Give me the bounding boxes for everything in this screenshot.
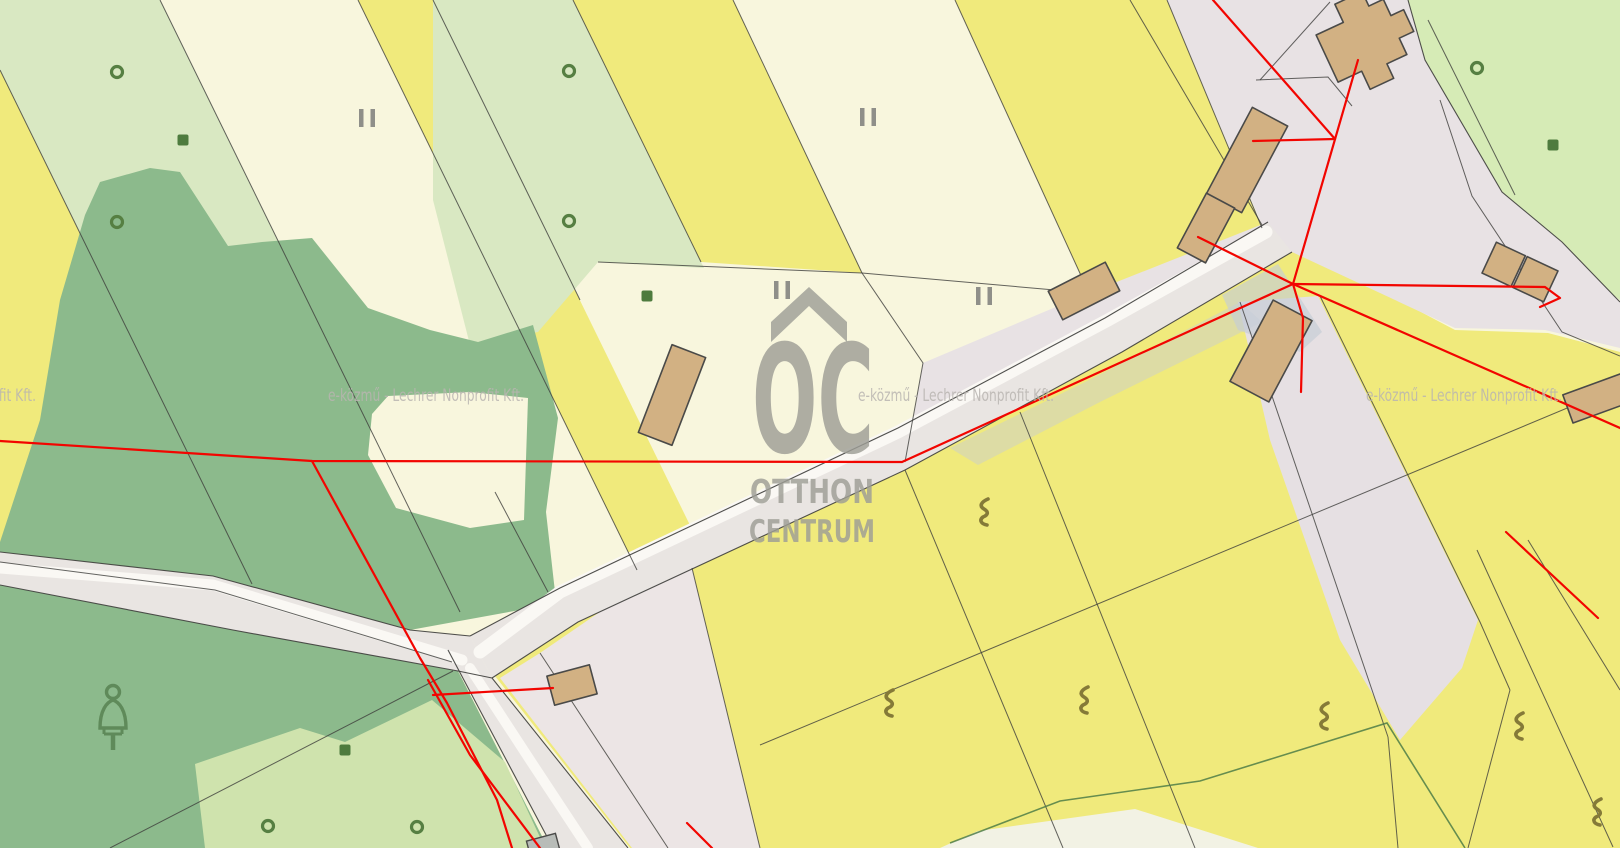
shrub-square-icon xyxy=(340,745,351,756)
shrub-square-icon xyxy=(178,135,189,146)
provider-watermark: e-közmű - Lechrer Nonprofit Kft. xyxy=(1366,386,1562,406)
cadastral-map: e-közmű - Lechrer Nonprofit Kft. e-közmű… xyxy=(0,0,1620,848)
logo-word-1: OTTHON xyxy=(750,472,874,511)
logo-word-2: CENTRUM xyxy=(749,514,875,550)
provider-watermark: e-közmű - Lechrer Nonprofit Kft. xyxy=(328,386,524,406)
provider-watermark: e-közmű - Lechrer Nonprofit Kft. xyxy=(0,386,36,406)
provider-watermark: e-közmű - Lechrer Nonprofit Kft. xyxy=(858,386,1054,406)
shrub-square-icon xyxy=(1548,140,1559,151)
otthon-centrum-logo: OC OTTHON CENTRUM xyxy=(749,287,875,550)
shrub-square-icon xyxy=(642,291,653,302)
map-canvas[interactable]: e-közmű - Lechrer Nonprofit Kft. e-közmű… xyxy=(0,0,1620,848)
logo-monogram: OC xyxy=(752,314,874,488)
